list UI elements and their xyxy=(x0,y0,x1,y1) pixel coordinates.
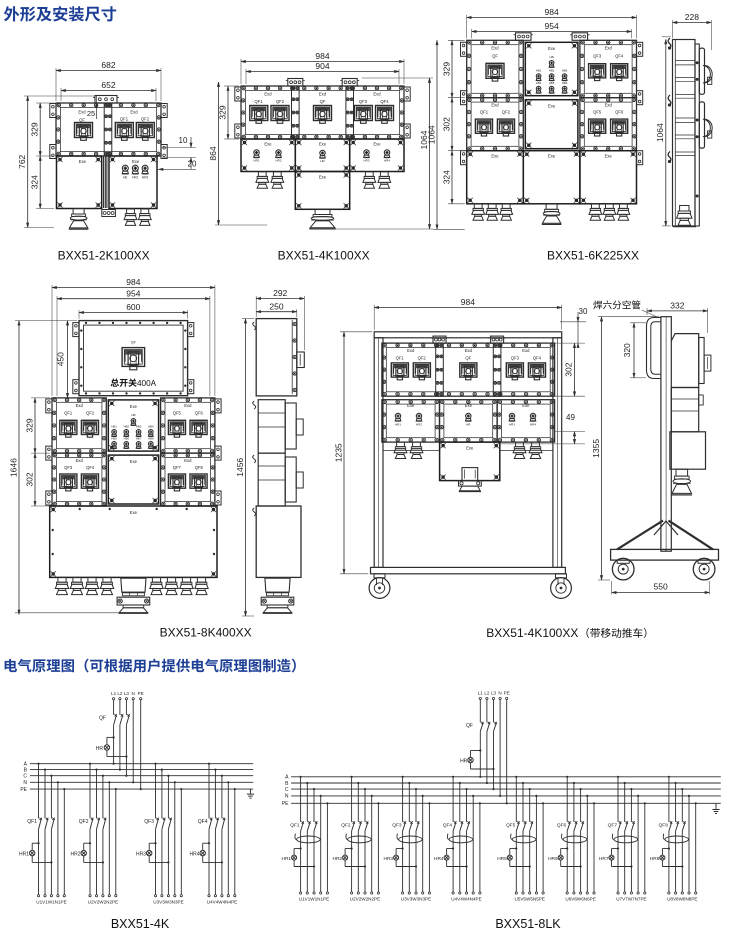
svg-text:QF: QF xyxy=(99,716,106,722)
svg-text:HE: HE xyxy=(123,176,127,180)
svg-text:HR4: HR4 xyxy=(434,856,444,862)
svg-text:Exd: Exd xyxy=(491,45,499,50)
svg-text:QF: QF xyxy=(492,53,498,58)
svg-text:25: 25 xyxy=(87,109,95,118)
svg-text:228: 228 xyxy=(685,12,699,22)
svg-text:L2: L2 xyxy=(117,691,123,696)
svg-text:U2V2W2N2PE: U2V2W2N2PE xyxy=(88,900,118,905)
svg-text:BXX51-4K100XX: BXX51-4K100XX xyxy=(486,626,578,640)
svg-text:L1: L1 xyxy=(478,690,484,695)
svg-text:U1V1W1N1PE: U1V1W1N1PE xyxy=(299,896,329,901)
svg-text:BXX51-2K100XX: BXX51-2K100XX xyxy=(58,249,150,263)
svg-text:HR1: HR1 xyxy=(132,176,139,180)
svg-text:QF1: QF1 xyxy=(64,410,73,415)
svg-text:954: 954 xyxy=(126,288,140,298)
svg-text:U3V3W3N3PE: U3V3W3N3PE xyxy=(401,896,431,901)
svg-text:320: 320 xyxy=(622,343,632,357)
svg-text:BXX51-8K400XX: BXX51-8K400XX xyxy=(160,626,252,640)
svg-text:400A: 400A xyxy=(137,379,157,388)
svg-text:QF8: QF8 xyxy=(659,823,669,829)
svg-text:1646: 1646 xyxy=(8,458,18,477)
svg-text:329: 329 xyxy=(30,122,40,136)
svg-text:984: 984 xyxy=(126,277,140,287)
svg-text:1456: 1456 xyxy=(235,458,245,477)
svg-text:302: 302 xyxy=(24,472,34,486)
svg-text:QF: QF xyxy=(79,118,85,123)
svg-text:QF4: QF4 xyxy=(198,819,208,825)
svg-text:QF7: QF7 xyxy=(173,465,182,470)
svg-text:Exe: Exe xyxy=(407,403,415,408)
svg-text:QF2: QF2 xyxy=(86,410,95,415)
svg-text:332: 332 xyxy=(670,301,684,311)
svg-text:HR8: HR8 xyxy=(650,856,660,862)
svg-text:U6V6W6N6PE: U6V6W6N6PE xyxy=(565,896,595,901)
svg-text:QF4: QF4 xyxy=(380,99,389,104)
svg-text:1064: 1064 xyxy=(655,123,665,142)
svg-text:QF2: QF2 xyxy=(502,110,511,115)
svg-text:HB5: HB5 xyxy=(549,81,555,85)
svg-text:QF2: QF2 xyxy=(276,99,285,104)
svg-text:QF: QF xyxy=(466,723,473,729)
svg-text:329: 329 xyxy=(441,62,451,76)
svg-text:Exe: Exe xyxy=(548,46,556,51)
svg-text:QF: QF xyxy=(465,356,471,361)
svg-text:682: 682 xyxy=(101,60,115,70)
svg-text:250: 250 xyxy=(269,301,283,311)
svg-text:QF4: QF4 xyxy=(86,465,95,470)
svg-text:HB7: HB7 xyxy=(136,436,142,440)
svg-text:984: 984 xyxy=(315,51,329,61)
svg-text:N: N xyxy=(132,691,135,696)
svg-text:Exd: Exd xyxy=(130,110,138,115)
svg-text:QF6: QF6 xyxy=(195,410,204,415)
svg-text:QF1: QF1 xyxy=(290,823,300,829)
svg-text:QF5: QF5 xyxy=(506,823,516,829)
svg-text:450: 450 xyxy=(56,352,66,366)
svg-text:HR2: HR2 xyxy=(275,159,281,163)
svg-text:QF5: QF5 xyxy=(173,410,182,415)
svg-text:L3: L3 xyxy=(491,690,497,695)
svg-text:20: 20 xyxy=(188,160,197,169)
svg-text:Exe: Exe xyxy=(465,403,473,408)
svg-text:BXX51-6K225XX: BXX51-6K225XX xyxy=(547,249,639,263)
svg-text:L3: L3 xyxy=(124,691,130,696)
svg-text:BXX51-4K: BXX51-4K xyxy=(111,917,170,931)
svg-text:B: B xyxy=(24,767,28,773)
svg-text:HB4: HB4 xyxy=(148,424,154,428)
svg-text:QF3: QF3 xyxy=(359,99,368,104)
svg-text:Exd: Exd xyxy=(522,348,530,353)
svg-text:Exe: Exe xyxy=(130,404,138,409)
svg-text:PE: PE xyxy=(282,801,289,807)
svg-text:HB6: HB6 xyxy=(562,81,568,85)
svg-text:Exe: Exe xyxy=(548,104,556,109)
svg-text:Exd: Exd xyxy=(184,458,192,463)
svg-text:Exe: Exe xyxy=(132,159,140,164)
svg-text:U3V3W3N3PE: U3V3W3N3PE xyxy=(153,900,183,905)
svg-text:762: 762 xyxy=(17,154,27,168)
svg-text:984: 984 xyxy=(461,297,475,307)
svg-text:HR3: HR3 xyxy=(136,851,146,857)
svg-text:Exe: Exe xyxy=(373,142,381,147)
svg-text:324: 324 xyxy=(441,170,451,184)
svg-text:HB6: HB6 xyxy=(124,436,130,440)
svg-text:HB4: HB4 xyxy=(536,81,542,85)
svg-text:HR2: HR2 xyxy=(416,423,422,427)
svg-text:49: 49 xyxy=(566,413,575,422)
svg-text:U4V4W4N4PE: U4V4W4N4PE xyxy=(207,900,237,905)
svg-text:QF3: QF3 xyxy=(511,356,520,361)
svg-text:Exd: Exd xyxy=(264,92,272,97)
svg-text:PE: PE xyxy=(504,690,510,695)
svg-text:864: 864 xyxy=(208,146,218,160)
svg-text:984: 984 xyxy=(545,7,559,17)
svg-text:L1: L1 xyxy=(111,691,117,696)
svg-text:HR4: HR4 xyxy=(530,423,536,427)
svg-text:QF1: QF1 xyxy=(27,819,37,825)
svg-text:QF4: QF4 xyxy=(533,356,542,361)
svg-text:324: 324 xyxy=(30,175,40,189)
svg-text:PE: PE xyxy=(138,691,144,696)
svg-text:HR7: HR7 xyxy=(599,856,609,862)
svg-text:Exd: Exd xyxy=(373,92,381,97)
svg-text:QF2: QF2 xyxy=(341,823,351,829)
svg-text:N: N xyxy=(498,690,501,695)
svg-text:HB3: HB3 xyxy=(136,424,142,428)
svg-text:Exe: Exe xyxy=(466,446,474,451)
svg-text:QF5: QF5 xyxy=(593,110,602,115)
svg-text:904: 904 xyxy=(315,61,329,71)
svg-text:329: 329 xyxy=(24,418,34,432)
svg-text:HR2: HR2 xyxy=(70,851,80,857)
svg-text:HB1: HB1 xyxy=(111,424,117,428)
svg-text:HR: HR xyxy=(460,759,468,765)
svg-text:302: 302 xyxy=(564,362,574,376)
svg-text:HR2: HR2 xyxy=(142,176,149,180)
svg-text:600: 600 xyxy=(126,302,140,312)
svg-text:HB8: HB8 xyxy=(148,436,154,440)
svg-text:1064: 1064 xyxy=(426,125,436,144)
svg-text:L2: L2 xyxy=(484,690,490,695)
svg-text:Exe: Exe xyxy=(79,159,87,164)
svg-text:Exd: Exd xyxy=(407,348,415,353)
svg-text:HR1: HR1 xyxy=(281,856,291,862)
svg-text:QF4: QF4 xyxy=(443,823,453,829)
svg-text:HR2: HR2 xyxy=(332,856,342,862)
svg-text:Exe: Exe xyxy=(319,175,327,180)
svg-text:Exe: Exe xyxy=(130,510,138,515)
svg-text:Exe: Exe xyxy=(319,142,327,147)
svg-text:Exe: Exe xyxy=(264,142,272,147)
svg-text:HB: HB xyxy=(131,413,135,417)
svg-text:Exe: Exe xyxy=(548,154,556,159)
svg-text:BXX51-8LK: BXX51-8LK xyxy=(495,917,561,931)
svg-text:302: 302 xyxy=(441,117,451,131)
svg-text:HR3: HR3 xyxy=(509,423,515,427)
svg-text:Exe: Exe xyxy=(522,403,530,408)
svg-text:U2V2W2N2PE: U2V2W2N2PE xyxy=(350,896,380,901)
svg-text:Exd: Exd xyxy=(605,45,613,50)
svg-text:HR: HR xyxy=(96,746,104,752)
svg-text:10: 10 xyxy=(179,136,188,145)
svg-text:QF3: QF3 xyxy=(144,819,154,825)
svg-text:QF8: QF8 xyxy=(195,465,204,470)
svg-text:Exd: Exd xyxy=(491,103,499,108)
svg-text:QF3: QF3 xyxy=(593,53,602,58)
svg-text:HR4: HR4 xyxy=(189,851,199,857)
svg-text:HB3: HB3 xyxy=(562,68,568,72)
svg-text:30: 30 xyxy=(579,307,588,316)
svg-text:Exd: Exd xyxy=(184,403,192,408)
svg-text:QF6: QF6 xyxy=(615,110,624,115)
svg-text:HB5: HB5 xyxy=(111,436,117,440)
svg-text:550: 550 xyxy=(654,582,668,592)
svg-text:N: N xyxy=(23,780,27,786)
svg-text:HR1: HR1 xyxy=(395,423,401,427)
svg-text:U8V8W8N8PE: U8V8W8N8PE xyxy=(667,896,697,901)
svg-text:QF1: QF1 xyxy=(480,110,489,115)
svg-text:Exd: Exd xyxy=(76,458,84,463)
svg-text:PE: PE xyxy=(20,787,27,793)
svg-text:292: 292 xyxy=(273,288,287,298)
svg-text:HB: HB xyxy=(550,55,554,59)
svg-text:C: C xyxy=(23,774,27,780)
svg-text:QF1: QF1 xyxy=(120,117,129,122)
svg-text:QF2: QF2 xyxy=(79,819,89,825)
svg-text:Exe: Exe xyxy=(605,154,613,159)
svg-text:QF6: QF6 xyxy=(557,823,567,829)
svg-text:Exd: Exd xyxy=(76,403,84,408)
svg-text:HB2: HB2 xyxy=(549,68,555,72)
svg-text:B: B xyxy=(285,781,289,787)
svg-text:QF4: QF4 xyxy=(615,53,624,58)
svg-text:HR6: HR6 xyxy=(548,856,558,862)
svg-text:1355: 1355 xyxy=(591,439,601,458)
svg-text:QF3: QF3 xyxy=(64,465,73,470)
svg-text:QF2: QF2 xyxy=(141,117,150,122)
svg-text:HR1: HR1 xyxy=(253,159,259,163)
svg-text:U4V4W4N4PE: U4V4W4N4PE xyxy=(451,896,481,901)
svg-text:Exd: Exd xyxy=(78,110,86,115)
svg-text:U1V1W1N1PE: U1V1W1N1PE xyxy=(36,900,66,905)
svg-text:U5V5W5N5PE: U5V5W5N5PE xyxy=(515,896,545,901)
svg-text:A: A xyxy=(285,775,289,781)
svg-text:HR1: HR1 xyxy=(19,851,29,857)
svg-text:HR: HR xyxy=(320,159,325,163)
svg-text:Exe: Exe xyxy=(130,459,138,464)
svg-text:HR4: HR4 xyxy=(384,159,390,163)
svg-text:HR5: HR5 xyxy=(497,856,507,862)
svg-text:QF2: QF2 xyxy=(418,356,427,361)
svg-text:Exe: Exe xyxy=(491,154,499,159)
svg-text:C: C xyxy=(285,787,289,793)
svg-text:HR: HR xyxy=(466,423,471,427)
svg-text:HB1: HB1 xyxy=(536,68,542,72)
svg-text:QF1: QF1 xyxy=(396,356,405,361)
svg-text:HR3: HR3 xyxy=(363,159,369,163)
svg-text:QF3: QF3 xyxy=(392,823,402,829)
svg-text:HR3: HR3 xyxy=(383,856,393,862)
svg-text:Exd: Exd xyxy=(465,348,473,353)
svg-text:1235: 1235 xyxy=(333,443,343,462)
svg-text:QF: QF xyxy=(320,99,326,104)
svg-text:QF1: QF1 xyxy=(254,99,263,104)
svg-text:954: 954 xyxy=(545,21,559,31)
svg-text:U7V7W7N7PE: U7V7W7N7PE xyxy=(616,896,646,901)
svg-text:Exd: Exd xyxy=(605,103,613,108)
svg-text:N: N xyxy=(285,794,289,800)
svg-text:QF7: QF7 xyxy=(608,823,618,829)
svg-text:QF: QF xyxy=(131,341,137,345)
svg-text:BXX51-4K100XX: BXX51-4K100XX xyxy=(278,249,370,263)
svg-text:Exd: Exd xyxy=(319,92,327,97)
svg-text:652: 652 xyxy=(101,80,115,90)
svg-text:HB2: HB2 xyxy=(124,424,130,428)
